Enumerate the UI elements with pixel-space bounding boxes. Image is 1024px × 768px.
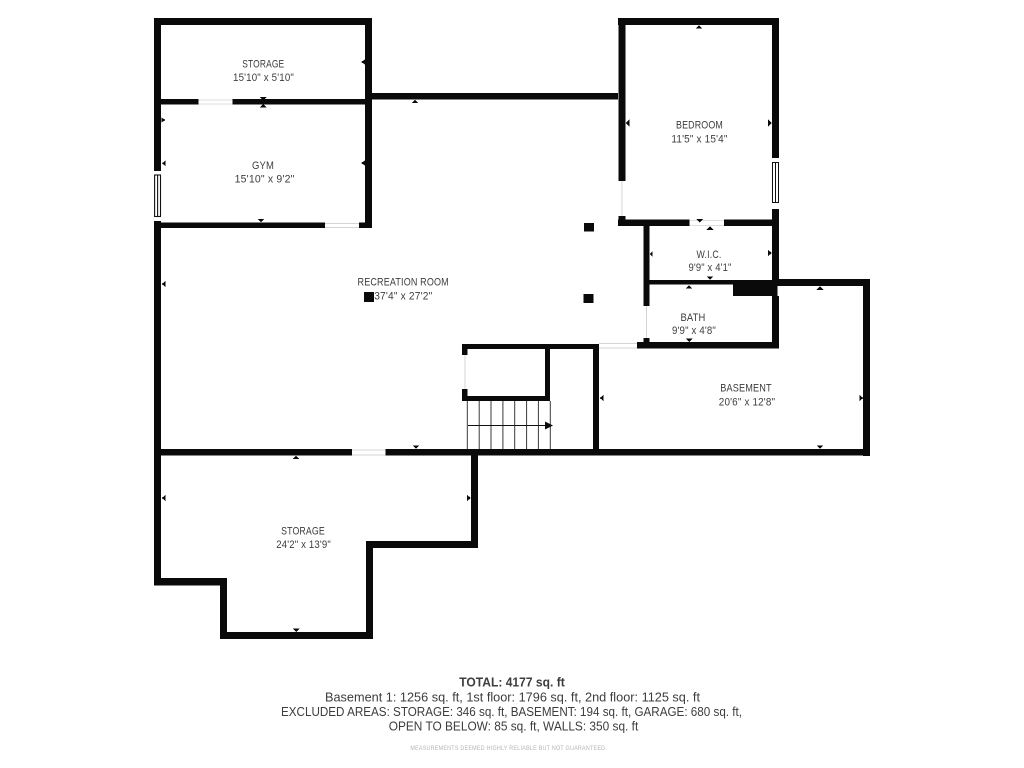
svg-text:BASEMENT: BASEMENT <box>720 383 772 395</box>
svg-text:STORAGE: STORAGE <box>281 526 325 538</box>
svg-text:11'5" x 15'4": 11'5" x 15'4" <box>671 134 727 146</box>
svg-text:TOTAL: 4177 sq. ft: TOTAL: 4177 sq. ft <box>459 675 565 690</box>
svg-text:W.I.C.: W.I.C. <box>697 249 722 261</box>
svg-text:37'4" x 27'2": 37'4" x 27'2" <box>374 291 432 303</box>
svg-text:EXCLUDED AREAS: STORAGE: 346 s: EXCLUDED AREAS: STORAGE: 346 sq. ft, BAS… <box>281 705 742 719</box>
svg-text:9'9" x 4'1": 9'9" x 4'1" <box>689 262 732 274</box>
svg-text:STORAGE: STORAGE <box>242 59 284 71</box>
svg-text:RECREATION ROOM: RECREATION ROOM <box>358 277 449 289</box>
svg-text:15'10" x 9'2": 15'10" x 9'2" <box>235 174 295 186</box>
svg-text:Basement 1: 1256 sq. ft, 1st f: Basement 1: 1256 sq. ft, 1st floor: 1796… <box>325 691 701 705</box>
svg-text:OPEN TO BELOW: 85 sq. ft, WALL: OPEN TO BELOW: 85 sq. ft, WALLS: 350 sq.… <box>389 719 639 733</box>
svg-text:24'2" x 13'9": 24'2" x 13'9" <box>276 539 331 551</box>
svg-text:BATH: BATH <box>681 312 706 324</box>
svg-text:9'9" x 4'8": 9'9" x 4'8" <box>672 325 716 337</box>
svg-text:20'6" x 12'8": 20'6" x 12'8" <box>719 397 775 409</box>
svg-text:BEDROOM: BEDROOM <box>676 120 723 132</box>
svg-text:MEASUREMENTS DEEMED HIGHLY REL: MEASUREMENTS DEEMED HIGHLY RELIABLE BUT … <box>410 745 607 752</box>
svg-text:15'10" x 5'10": 15'10" x 5'10" <box>233 72 294 84</box>
svg-text:GYM: GYM <box>252 160 274 172</box>
